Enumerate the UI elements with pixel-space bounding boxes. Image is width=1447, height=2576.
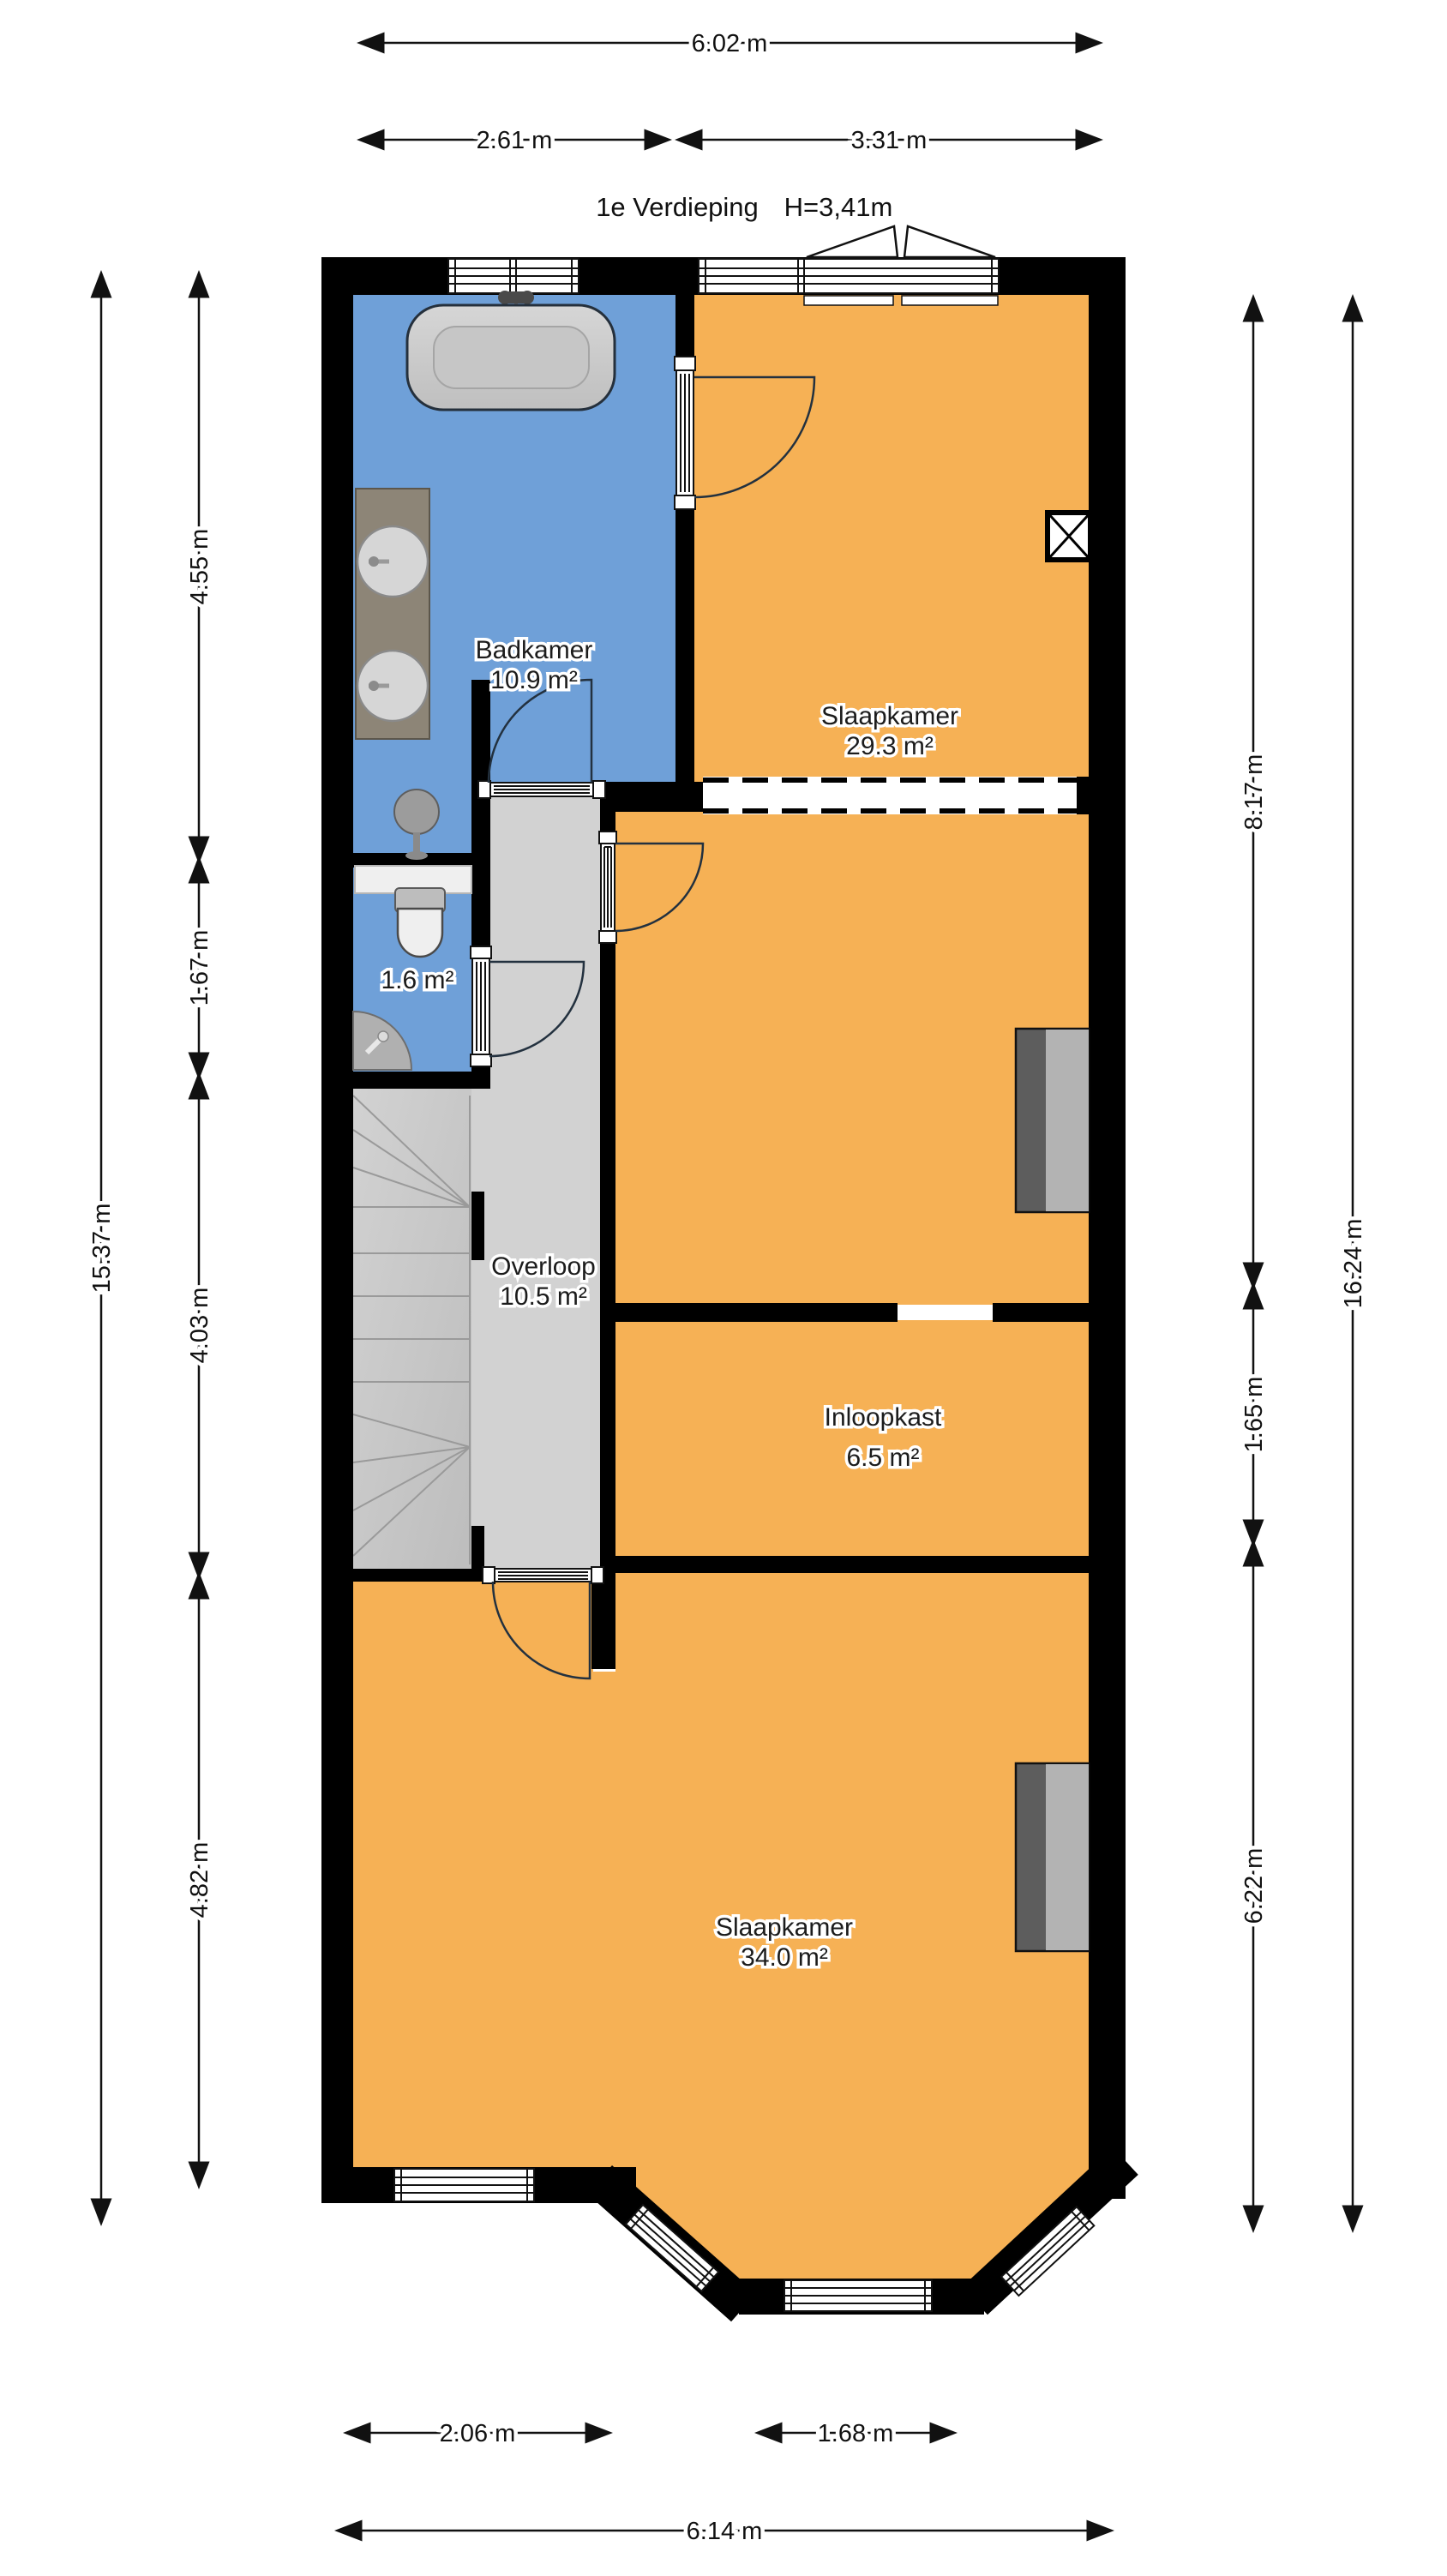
label-slaapkamer-boven: Slaapkamer	[821, 702, 958, 730]
label-slaapkamer-boven-area: 29.3 m²	[846, 732, 934, 760]
dim-bottom-total: 6.14 m	[687, 2518, 763, 2545]
floorplan-canvas: Badkamer 10.9 m² 1.6 m² Overloop 10.5 m²…	[0, 0, 1447, 2572]
wall-left	[321, 257, 353, 2203]
dashed-opening	[703, 777, 1078, 814]
floor-inloopkast	[615, 1320, 1089, 1558]
floorplan-page: Badkamer 10.9 m² 1.6 m² Overloop 10.5 m²…	[0, 0, 1447, 2572]
window-bedroom-top-icon	[699, 226, 999, 305]
window-bathroom-top-icon	[448, 259, 579, 293]
wall-right	[1089, 257, 1126, 2199]
wardrobe-icon	[1016, 1029, 1089, 1212]
window-bay-bottom-icon	[784, 2280, 932, 2311]
label-badkamer-area: 10.9 m²	[490, 666, 578, 694]
label-overloop-area: 10.5 m²	[500, 1282, 587, 1311]
dim-bottom-left: 2.06 m	[440, 2420, 516, 2447]
title-floor: 1e Verdieping	[596, 192, 759, 222]
plan-title: 1e Verdieping H=3,41m	[596, 192, 892, 222]
dim-bottom-right: 1.68 m	[818, 2420, 894, 2447]
floor-stairs	[353, 1089, 471, 1570]
dim-right-seg-1: 1.65 m	[1240, 1377, 1268, 1453]
window-bedroom-left-icon	[394, 2169, 534, 2201]
dim-left-seg-2: 4.03 m	[186, 1288, 213, 1364]
dim-left-seg-3: 4.82 m	[186, 1842, 213, 1918]
dim-top-right: 3.31 m	[851, 127, 928, 154]
bathtub-icon	[407, 291, 615, 410]
vent-shaft-icon	[1048, 513, 1090, 560]
label-slaapkamer-onder-area: 34.0 m²	[741, 1943, 828, 1972]
title-height: H=3,41m	[784, 192, 893, 222]
label-overloop: Overloop	[491, 1252, 596, 1281]
dim-left-seg-0: 4.55 m	[186, 529, 213, 605]
dim-left-total: 15.37 m	[88, 1204, 116, 1294]
dim-right-seg-2: 6.22 m	[1240, 1848, 1268, 1924]
dim-right-seg-0: 8.17 m	[1240, 754, 1268, 831]
label-toilet-area: 1.6 m²	[381, 966, 453, 994]
wardrobe-icon	[1016, 1763, 1089, 1951]
label-slaapkamer-onder: Slaapkamer	[716, 1913, 853, 1942]
sink-icon	[357, 526, 428, 597]
dim-top-total: 6.02 m	[692, 30, 768, 57]
vanity-counter	[356, 489, 429, 739]
dim-left-seg-1: 1.67 m	[186, 930, 213, 1006]
label-inloopkast: Inloopkast	[825, 1403, 942, 1432]
dim-right-total: 16.24 m	[1340, 1219, 1367, 1309]
label-inloopkast-area: 6.5 m²	[846, 1444, 919, 1472]
label-badkamer: Badkamer	[476, 636, 593, 664]
dim-top-left: 2.61 m	[477, 127, 553, 154]
sink-icon	[357, 651, 428, 721]
room-floors	[353, 295, 1089, 2306]
floor-overloop	[471, 783, 604, 1582]
